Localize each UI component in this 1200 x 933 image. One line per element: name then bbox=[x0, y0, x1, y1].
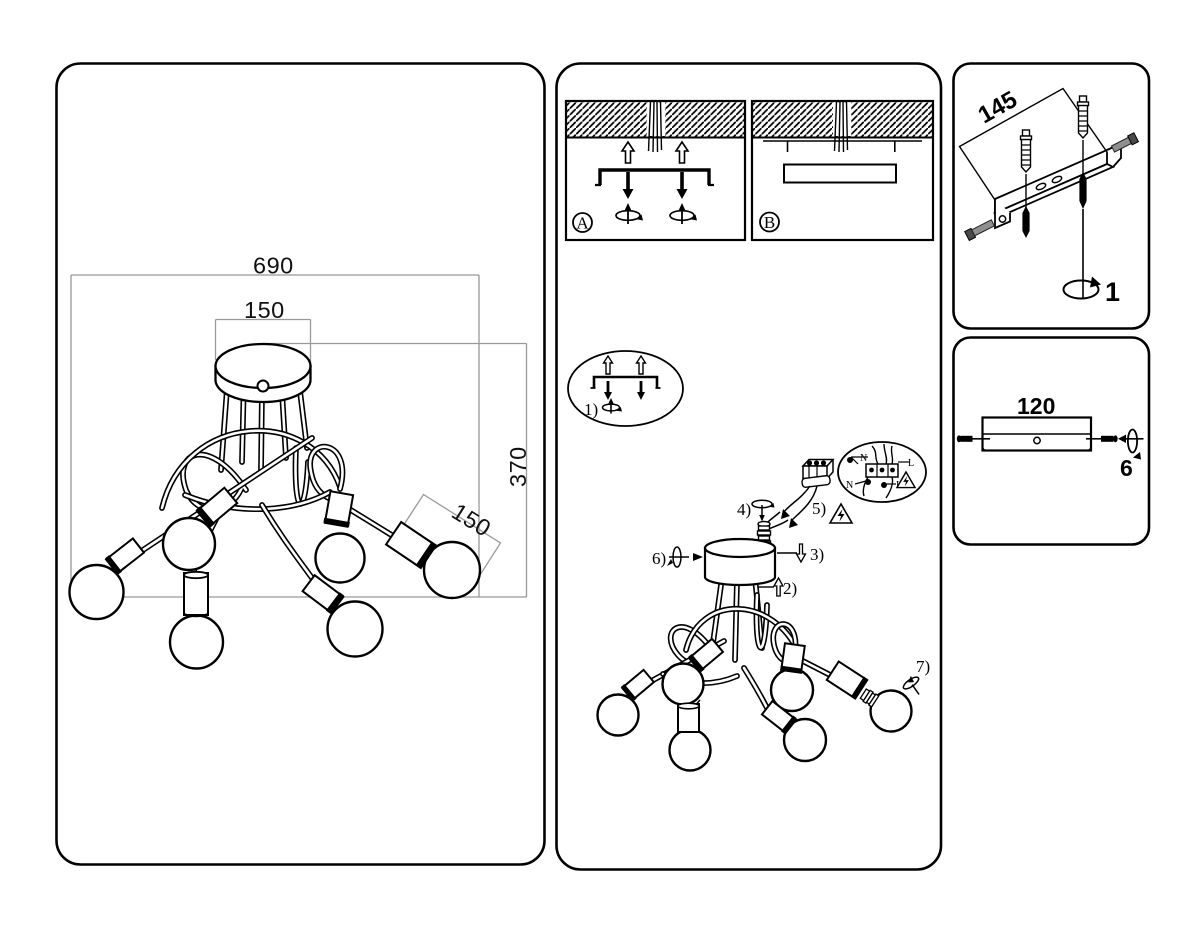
svg-text:6: 6 bbox=[1120, 455, 1133, 481]
svg-text:5): 5) bbox=[812, 499, 826, 518]
svg-text:2): 2) bbox=[783, 579, 797, 598]
svg-text:4): 4) bbox=[737, 500, 751, 519]
svg-text:L: L bbox=[908, 458, 914, 469]
svg-text:690: 690 bbox=[253, 253, 294, 279]
svg-text:1): 1) bbox=[584, 400, 598, 419]
svg-text:120: 120 bbox=[1017, 393, 1055, 419]
svg-text:N: N bbox=[860, 453, 867, 464]
svg-text:B: B bbox=[764, 213, 775, 232]
svg-text:3): 3) bbox=[810, 545, 824, 564]
svg-text:370: 370 bbox=[505, 446, 531, 487]
svg-text:7): 7) bbox=[916, 657, 930, 676]
svg-text:N: N bbox=[846, 480, 853, 491]
svg-text:145: 145 bbox=[974, 86, 1022, 129]
svg-text:6): 6) bbox=[652, 549, 666, 568]
svg-text:A: A bbox=[576, 214, 589, 233]
svg-text:150: 150 bbox=[244, 297, 285, 323]
svg-text:1: 1 bbox=[1105, 277, 1120, 307]
